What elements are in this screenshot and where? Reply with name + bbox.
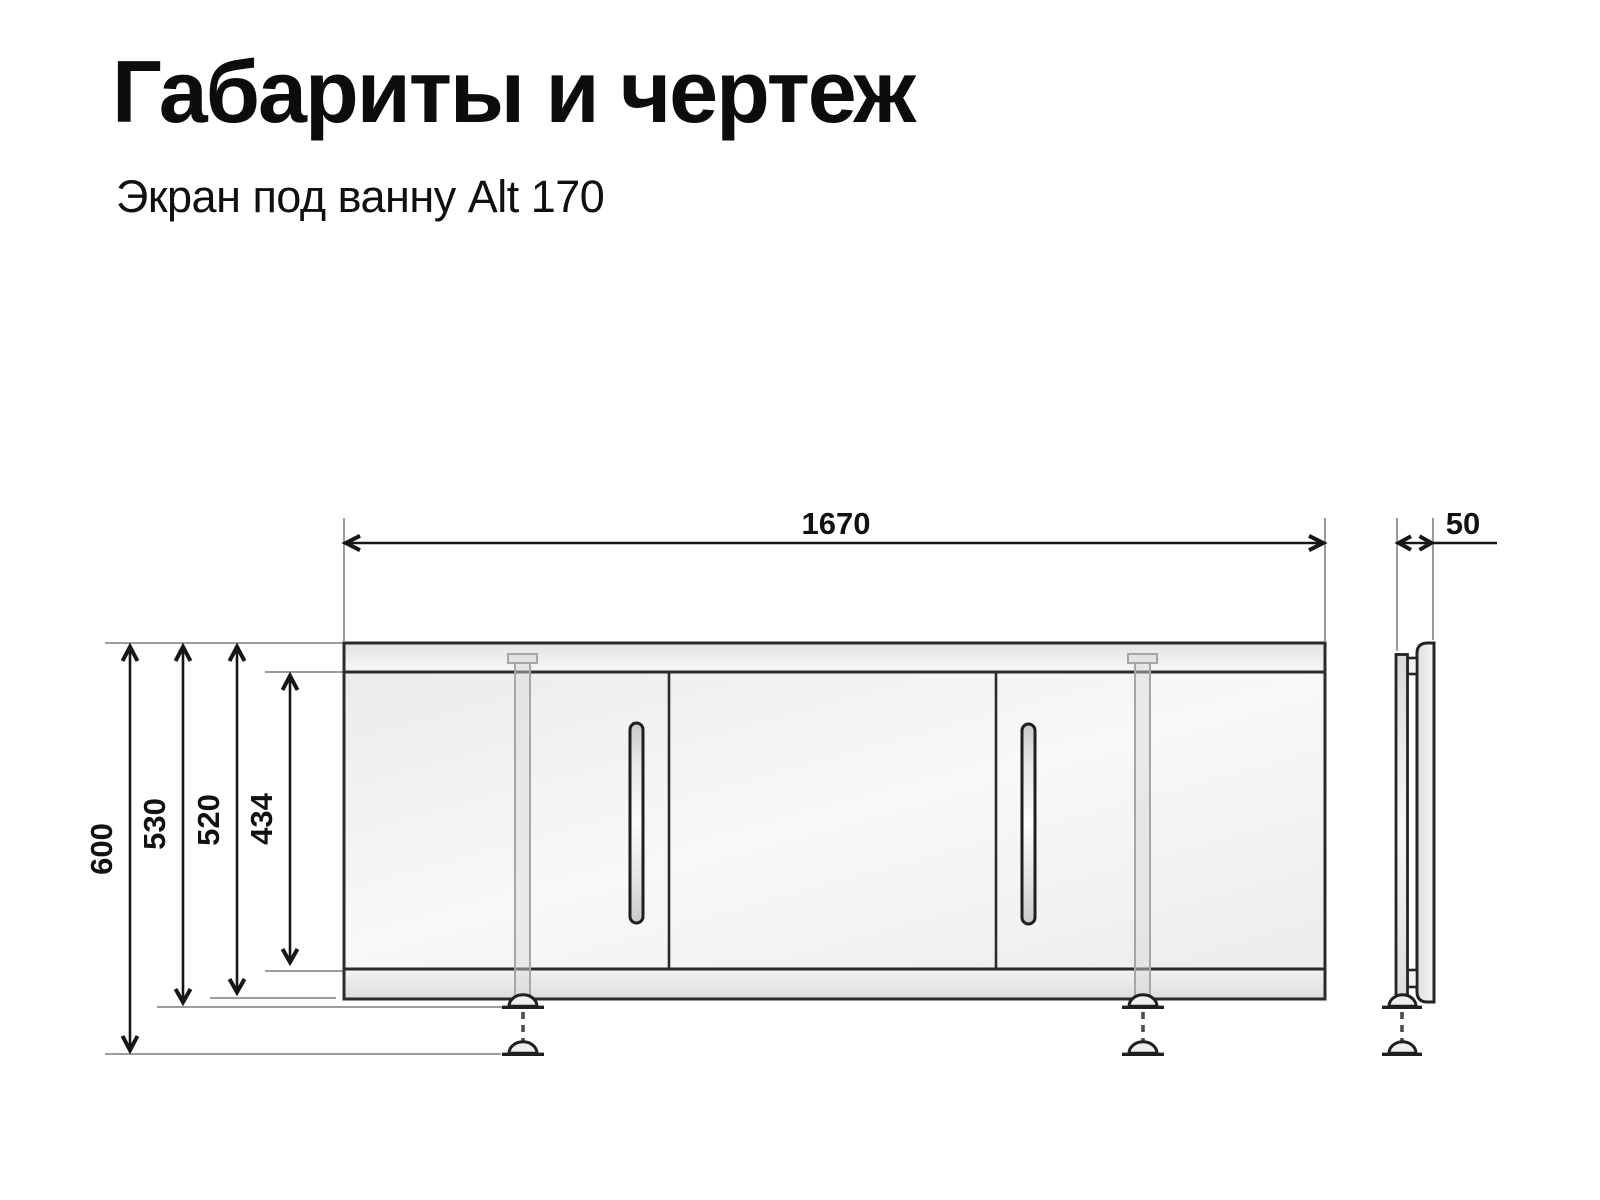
dim-height-434-label: 434 (244, 792, 279, 844)
dimension-height-434: 434 (244, 675, 298, 963)
leg-stem (515, 663, 530, 1003)
dimension-width: 1670 (345, 506, 1324, 550)
foot-dome-extended (1389, 1042, 1416, 1054)
dimension-height-600: 600 (84, 646, 138, 1051)
drawing-page: Габариты и чертеж Экран под ванну Alt 17… (0, 0, 1600, 1200)
dimension-height-530: 530 (137, 646, 191, 1003)
dim-depth-label: 50 (1446, 506, 1480, 541)
foot-left (502, 995, 544, 1055)
foot-dome-retracted (1129, 995, 1157, 1007)
handle-left (630, 723, 643, 923)
foot-side (1382, 995, 1422, 1055)
dim-width-label: 1670 (802, 506, 871, 541)
foot-dome-extended (1129, 1042, 1157, 1054)
leg-stem (1135, 663, 1150, 1003)
leg-cap (1128, 654, 1157, 663)
dim-height-530-label: 530 (137, 798, 172, 850)
dim-height-520-label: 520 (191, 794, 226, 846)
top-rail (346, 645, 1324, 672)
bath-screen-front (344, 643, 1325, 1003)
foot-right (1122, 995, 1164, 1055)
dimension-depth: 50 (1397, 506, 1497, 550)
bracket-top (1408, 658, 1418, 674)
foot-dome-extended (509, 1042, 537, 1054)
dim-height-600-label: 600 (84, 823, 119, 875)
dimension-height-520: 520 (191, 646, 245, 993)
foot-dome-retracted (509, 995, 537, 1007)
leg-cap (508, 654, 537, 663)
foot-dome-retracted (1389, 995, 1416, 1007)
frame-profile (1417, 643, 1434, 1002)
bracket-bottom (1408, 970, 1418, 987)
bath-screen-profile (1396, 643, 1434, 1002)
bottom-rail (346, 969, 1324, 998)
panel-body (344, 643, 1325, 999)
technical-drawing: 1670 600 530 520 (0, 0, 1600, 1200)
handle-right (1022, 724, 1035, 924)
side-view: 50 (1382, 506, 1497, 1054)
front-view: 1670 600 530 520 (84, 506, 1325, 1054)
facade-panel-edge (1396, 655, 1408, 999)
